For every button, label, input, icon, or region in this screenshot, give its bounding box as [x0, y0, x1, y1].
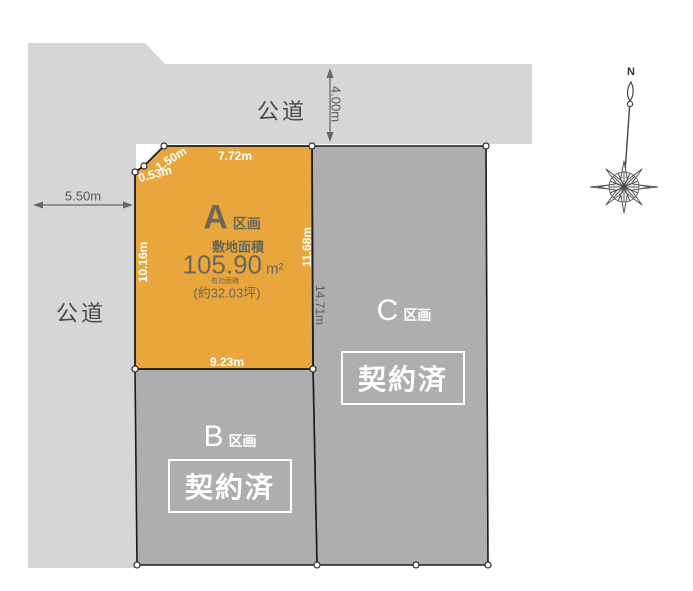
plot-c-status-badge: 契約済	[341, 351, 465, 405]
plot-b-title: B 区画	[203, 420, 256, 454]
plot-a-title: A 区画	[203, 199, 261, 238]
plot-c-title: C 区画	[377, 294, 432, 328]
road-top-label: 公道	[257, 94, 307, 126]
plot-b-suffix: 区画	[229, 431, 257, 451]
plot-a-suffix: 区画	[233, 214, 261, 234]
site-plan-canvas: 公道 公道 5.50m 4.00m 7.72m 1.50m 0.53m 10.1…	[0, 0, 693, 591]
dim-c-left-edge: 14.71m	[313, 285, 327, 325]
dim-a-left-edge: 10.16m	[136, 242, 150, 283]
plot-a-letter: A	[203, 199, 228, 238]
plot-a-area-unit: m²	[266, 261, 284, 278]
compass-rose-icon	[590, 82, 658, 213]
plot-b-status-badge: 契約済	[168, 459, 292, 513]
plot-a-tsubo-value: (約32.03坪)	[193, 283, 260, 302]
dim-left-road-width: 5.50m	[65, 189, 101, 204]
plot-c-letter: C	[377, 294, 399, 328]
plot-b-letter: B	[203, 420, 223, 454]
dim-a-right-edge: 11.68m	[300, 227, 314, 267]
dim-a-bottom-edge: 9.23m	[210, 355, 244, 369]
plot-c-suffix: 区画	[403, 305, 431, 325]
road-left-label: 公道	[56, 296, 106, 328]
dim-top-road-width: 4.00m	[329, 86, 344, 122]
compass-north-label: N	[627, 66, 635, 78]
dim-a-top-edge: 7.72m	[218, 149, 252, 163]
